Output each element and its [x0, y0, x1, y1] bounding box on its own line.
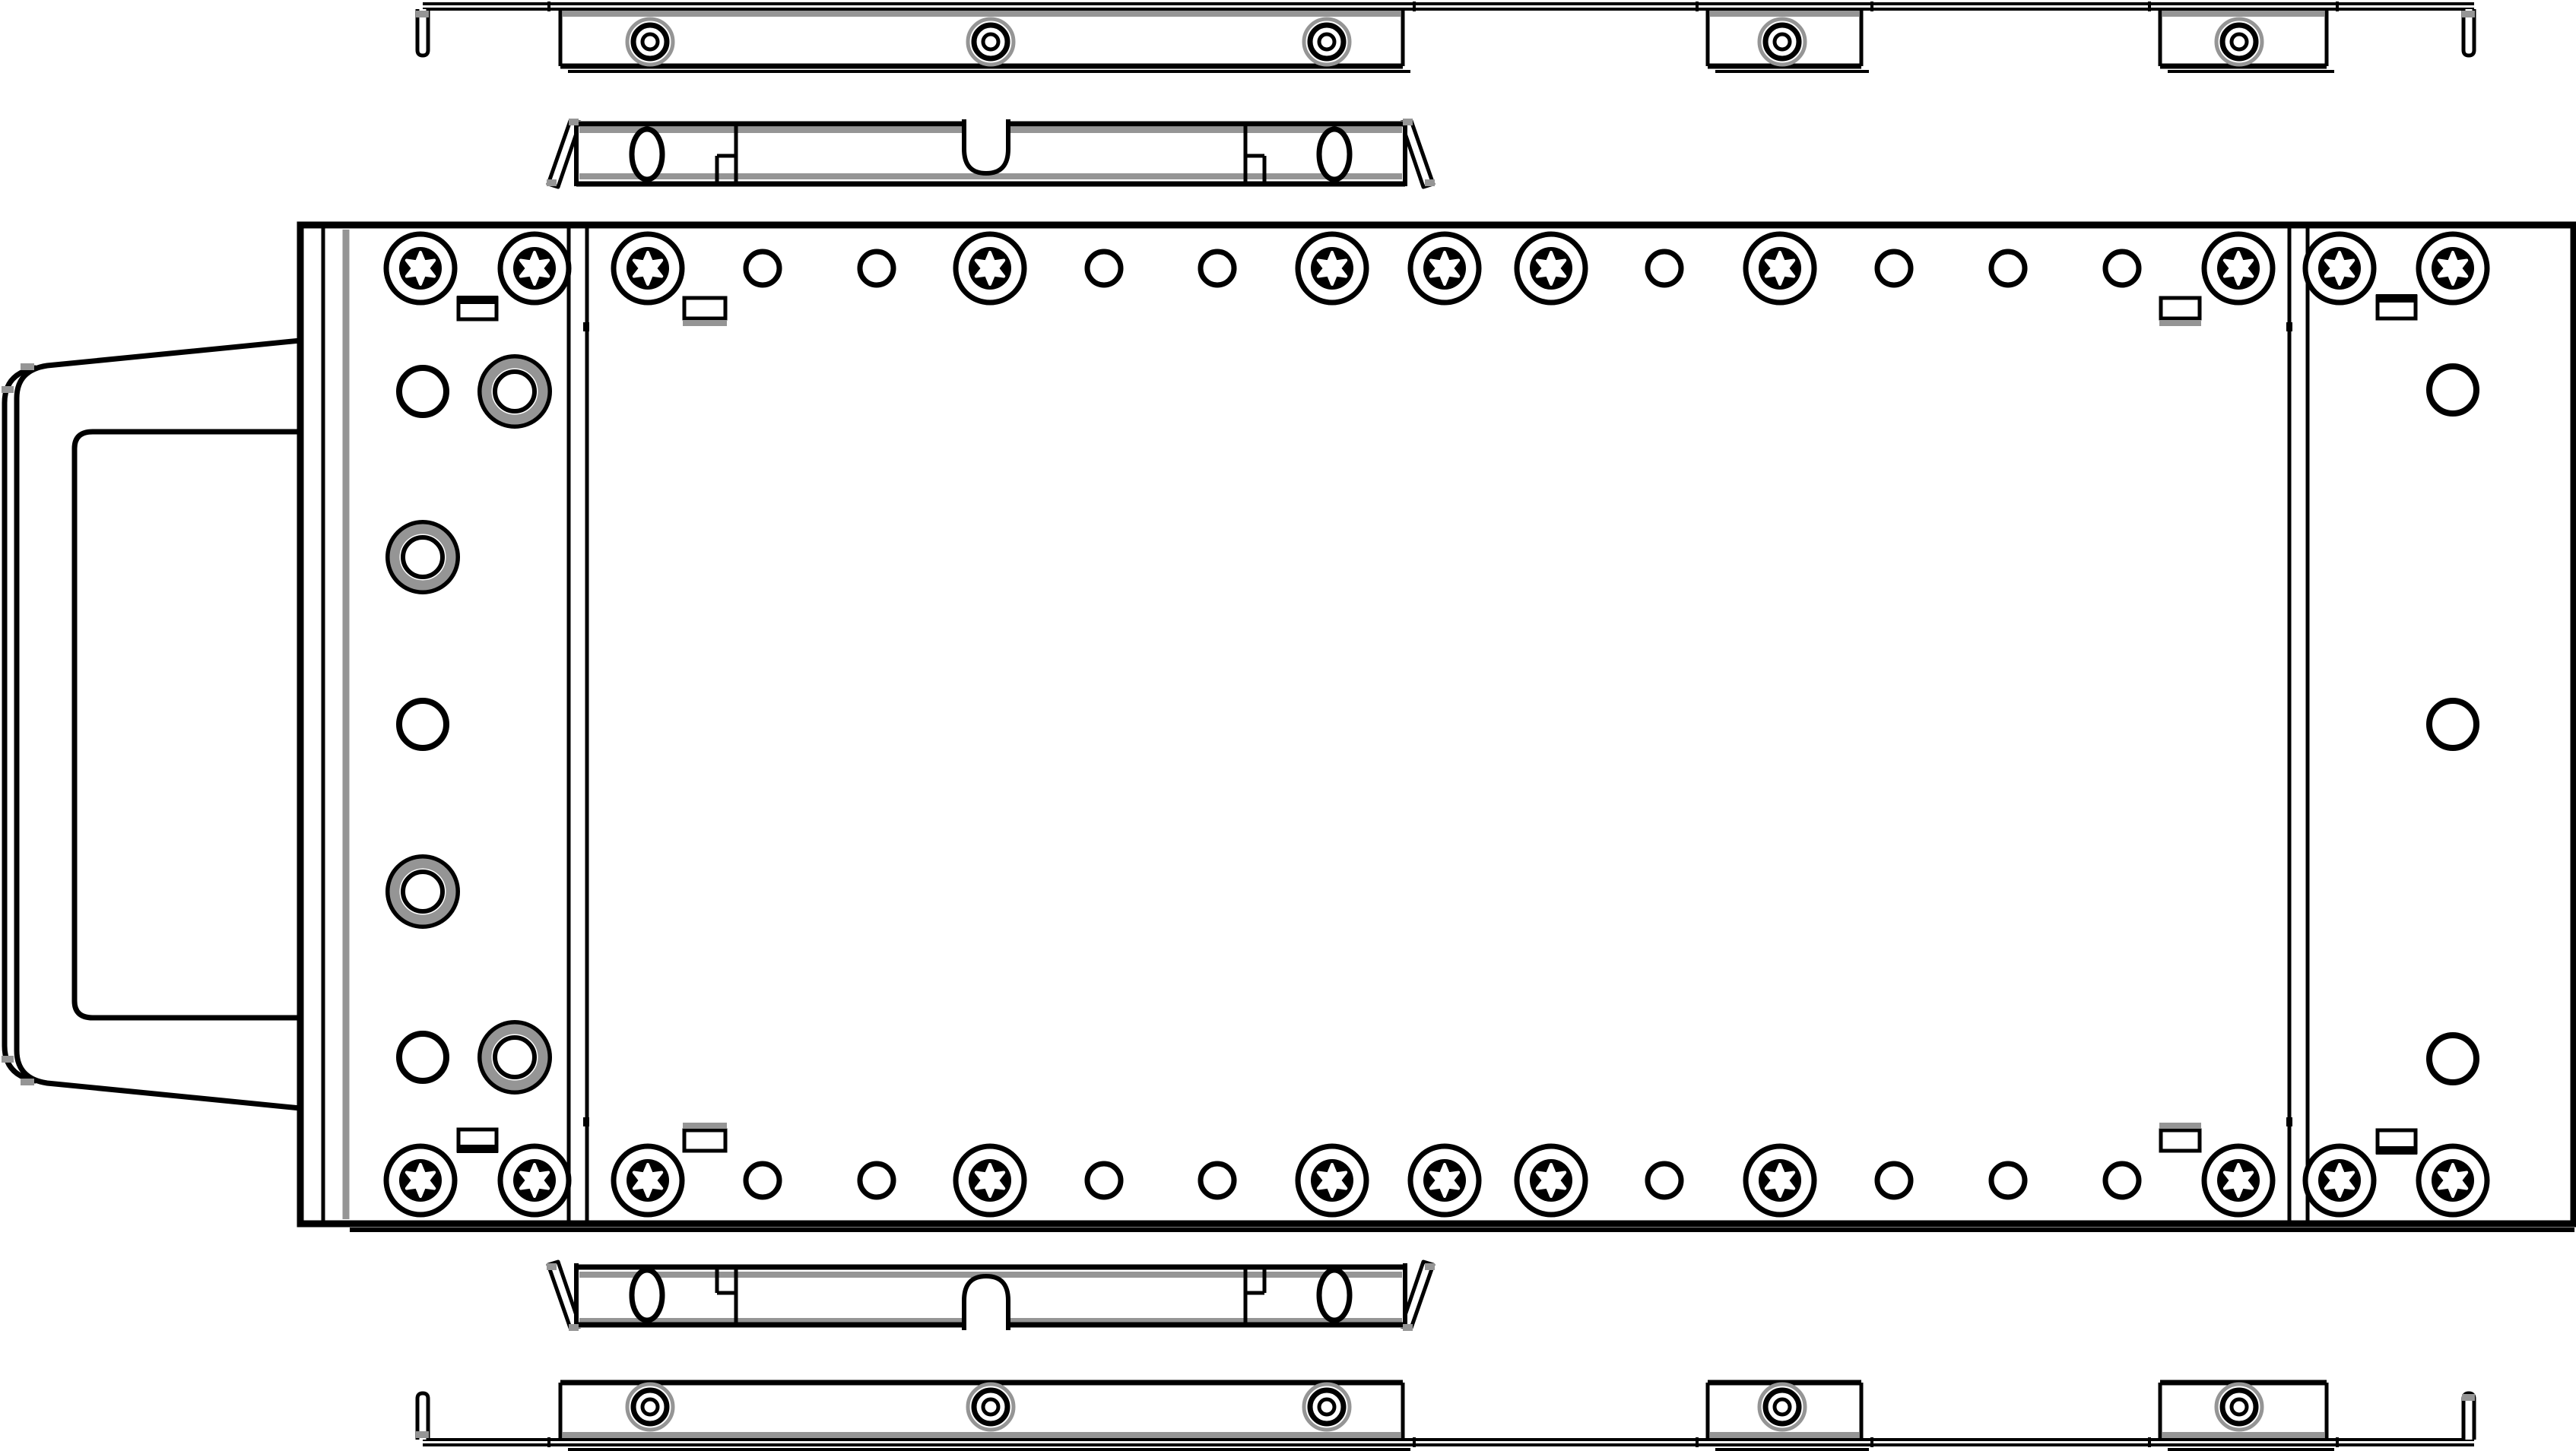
rail-screw-bore [1319, 34, 1334, 49]
rail-screw-bore [2232, 1399, 2247, 1415]
clearance-hole [2429, 701, 2476, 748]
flap-gray-tick [569, 119, 579, 125]
rail-screw-bore [642, 34, 658, 49]
slot-bar [457, 296, 498, 304]
pilot-hole [1087, 1164, 1121, 1197]
mounting-slot [684, 1130, 725, 1151]
rail-screw-bore [642, 1399, 658, 1415]
mounting-slot [2161, 298, 2200, 318]
drawing-page [0, 0, 2576, 1451]
pilot-hole [1201, 1164, 1234, 1197]
connector-corner-tick [21, 1079, 34, 1085]
rail-screw-bore [983, 34, 998, 49]
connector-outline [17, 341, 300, 1108]
panel-joint-tick [2286, 1117, 2292, 1126]
flap-gray-tick [547, 1263, 557, 1270]
clearance-hole [399, 701, 446, 748]
slot-bar [2376, 1146, 2417, 1155]
grommet-bore [495, 1038, 535, 1077]
pilot-hole [1991, 1164, 2025, 1197]
grommet-bore [495, 372, 535, 411]
rail-screw-bore [1775, 34, 1790, 49]
connector-corner-tick [2, 1056, 14, 1063]
pilot-hole [1648, 1164, 1681, 1197]
slot-bar [457, 1145, 498, 1153]
clearance-hole [399, 368, 446, 415]
grommet-bore [403, 872, 443, 911]
pilot-hole [1201, 252, 1234, 285]
flap-gray-tick [1403, 119, 1413, 125]
hook-gray-tick [2462, 1394, 2475, 1401]
pilot-hole [860, 252, 893, 285]
flap-gray-tick [1403, 1324, 1413, 1331]
bottom-mounting-rail [416, 1383, 2475, 1449]
flap-gray-tick [1425, 179, 1435, 186]
pilot-hole [1087, 252, 1121, 285]
top-spring-bracket [547, 119, 1435, 187]
mounting-slot [2161, 1130, 2200, 1151]
flap-gray-tick [569, 1324, 579, 1331]
pilot-hole [2105, 1164, 2139, 1197]
center-notch [964, 119, 1008, 173]
pilot-hole [1991, 252, 2025, 285]
pilot-hole [746, 252, 779, 285]
left-connector [2, 341, 300, 1108]
rail-screw-bore [983, 1399, 998, 1415]
main-chassis-plate [300, 225, 2574, 1230]
clearance-hole [2429, 366, 2476, 413]
slot-bar [2376, 294, 2417, 303]
pilot-hole [1877, 252, 1911, 285]
hook-gray-tick [416, 11, 429, 17]
center-notch [964, 1276, 1008, 1330]
rail-screw-bore [2232, 34, 2247, 49]
top-mounting-rail [416, 2, 2475, 71]
connector-corner-tick [21, 363, 34, 370]
drawing-canvas [0, 0, 2576, 1451]
pilot-hole [2105, 252, 2139, 285]
bottom-spring-bracket [547, 1262, 1435, 1331]
oblong-hole [632, 1270, 662, 1320]
hook-gray-tick [416, 1431, 429, 1438]
flap-gray-tick [547, 179, 557, 186]
grommet-bore [403, 537, 443, 577]
pilot-hole [1648, 252, 1681, 285]
pilot-hole [746, 1164, 779, 1197]
oblong-hole [1319, 129, 1350, 179]
clearance-hole [399, 1034, 446, 1081]
panel-joint-tick [583, 322, 589, 331]
panel-joint-tick [2286, 322, 2292, 331]
connector-end-face [5, 368, 35, 1081]
mounting-slot [684, 298, 725, 318]
oblong-hole [1319, 1270, 1350, 1320]
rail-screw-bore [1775, 1399, 1790, 1415]
pilot-hole [860, 1164, 893, 1197]
oblong-hole [632, 129, 662, 179]
panel-joint-tick [583, 1117, 589, 1126]
chassis-outline [300, 225, 2574, 1224]
connector-corner-tick [2, 386, 14, 393]
rail-screw-bore [1319, 1399, 1334, 1415]
hook-gray-tick [2462, 11, 2475, 17]
clearance-hole [2429, 1035, 2476, 1082]
connector-recess [75, 432, 300, 1018]
flap-gray-tick [1425, 1263, 1435, 1270]
pilot-hole [1877, 1164, 1911, 1197]
